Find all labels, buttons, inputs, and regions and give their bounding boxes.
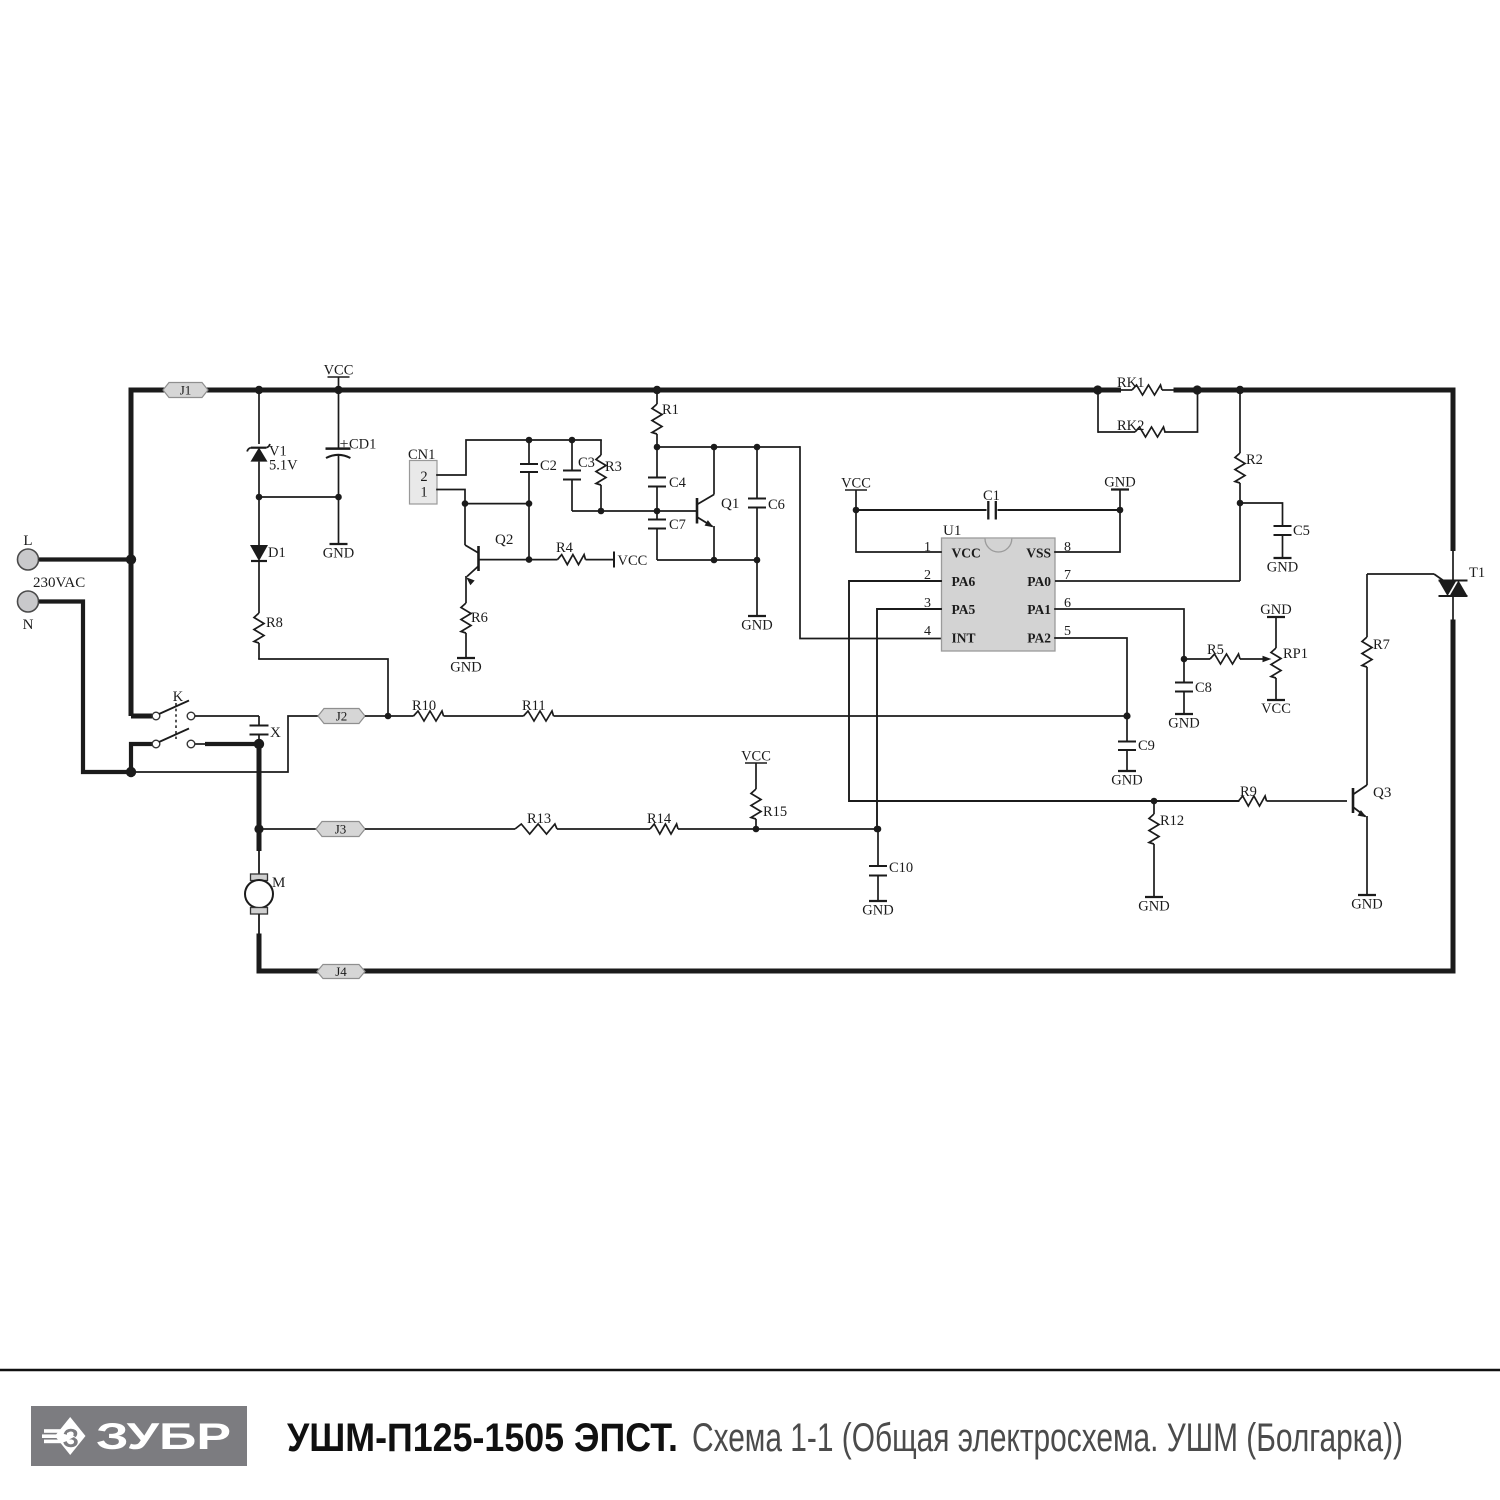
svg-text:VCC: VCC (618, 553, 648, 569)
svg-text:R8: R8 (266, 615, 283, 631)
svg-text:J2: J2 (336, 709, 348, 724)
svg-text:GND: GND (323, 546, 354, 562)
svg-text:R15: R15 (763, 804, 787, 820)
svg-text:PA1: PA1 (1027, 602, 1051, 617)
svg-text:GND: GND (450, 660, 481, 676)
svg-text:C4: C4 (669, 475, 687, 491)
svg-text:2: 2 (420, 469, 427, 485)
svg-text:VSS: VSS (1026, 546, 1051, 561)
svg-text:VCC: VCC (1261, 701, 1291, 717)
svg-text:R14: R14 (647, 811, 672, 827)
svg-text:J4: J4 (335, 964, 347, 979)
svg-text:R6: R6 (471, 610, 488, 626)
svg-text:R3: R3 (605, 459, 622, 475)
svg-text:INT: INT (952, 631, 976, 646)
svg-text:GND: GND (1267, 560, 1298, 576)
svg-text:PA5: PA5 (952, 602, 976, 617)
svg-text:C1: C1 (983, 488, 1000, 504)
svg-text:Q1: Q1 (721, 496, 739, 512)
svg-text:J1: J1 (180, 383, 192, 398)
svg-text:R10: R10 (412, 698, 436, 714)
svg-text:R9: R9 (1240, 784, 1257, 800)
svg-text:C6: C6 (768, 497, 785, 513)
svg-text:230VAC: 230VAC (33, 575, 85, 591)
svg-text:C8: C8 (1195, 680, 1212, 696)
svg-text:1: 1 (420, 485, 427, 501)
svg-text:K: K (173, 689, 184, 705)
svg-text:C2: C2 (540, 458, 557, 474)
svg-text:GND: GND (1260, 602, 1291, 618)
svg-text:RP1: RP1 (1283, 646, 1308, 662)
svg-text:C9: C9 (1138, 738, 1155, 754)
svg-text:N: N (23, 617, 34, 633)
svg-text:УШМ-П125-1505 ЭПСТ.: УШМ-П125-1505 ЭПСТ. (287, 1416, 678, 1460)
svg-text:U1: U1 (943, 523, 961, 539)
svg-text:RK2: RK2 (1117, 418, 1144, 434)
svg-text:R4: R4 (556, 540, 574, 556)
svg-text:+: + (340, 436, 349, 453)
svg-text:R11: R11 (522, 698, 546, 714)
svg-text:C10: C10 (889, 860, 913, 876)
svg-text:R2: R2 (1246, 452, 1263, 468)
svg-text:D1: D1 (268, 545, 286, 561)
svg-text:GND: GND (1168, 716, 1199, 732)
svg-text:GND: GND (1138, 899, 1169, 915)
svg-text:L: L (23, 533, 32, 549)
svg-text:R5: R5 (1207, 642, 1224, 658)
svg-text:C5: C5 (1293, 523, 1310, 539)
svg-text:GND: GND (1111, 773, 1142, 789)
svg-text:Q3: Q3 (1373, 785, 1391, 801)
svg-text:PA0: PA0 (1027, 574, 1051, 589)
svg-text:C3: C3 (578, 455, 595, 471)
svg-text:R13: R13 (527, 811, 551, 827)
svg-text:5.1V: 5.1V (269, 458, 298, 474)
svg-text:VCC: VCC (841, 476, 871, 492)
svg-text:Q2: Q2 (495, 532, 513, 548)
svg-text:GND: GND (1351, 897, 1382, 913)
svg-text:M: M (272, 875, 285, 891)
svg-text:X: X (270, 725, 281, 741)
svg-text:Схема 1-1 (Общая электросхема.: Схема 1-1 (Общая электросхема. УШМ (Болг… (692, 1416, 1403, 1460)
svg-text:R1: R1 (662, 402, 679, 418)
svg-text:R12: R12 (1160, 813, 1184, 829)
svg-text:PA6: PA6 (952, 574, 976, 589)
svg-text:VCC: VCC (324, 363, 354, 379)
svg-text:CN1: CN1 (408, 447, 435, 463)
svg-text:ЗУБР: ЗУБР (96, 1416, 231, 1457)
svg-text:C7: C7 (669, 517, 686, 533)
svg-text:R7: R7 (1373, 637, 1390, 653)
svg-text:GND: GND (741, 618, 772, 634)
svg-text:T1: T1 (1469, 565, 1485, 581)
svg-text:RK1: RK1 (1117, 375, 1144, 391)
svg-text:5: 5 (1064, 624, 1071, 639)
svg-text:GND: GND (1104, 475, 1135, 491)
svg-text:VCC: VCC (741, 749, 771, 765)
svg-text:J3: J3 (335, 822, 347, 837)
svg-text:GND: GND (862, 903, 893, 919)
svg-text:CD1: CD1 (349, 437, 376, 453)
svg-text:PA2: PA2 (1027, 631, 1051, 646)
svg-text:4: 4 (924, 624, 931, 639)
svg-text:VCC: VCC (952, 546, 981, 561)
